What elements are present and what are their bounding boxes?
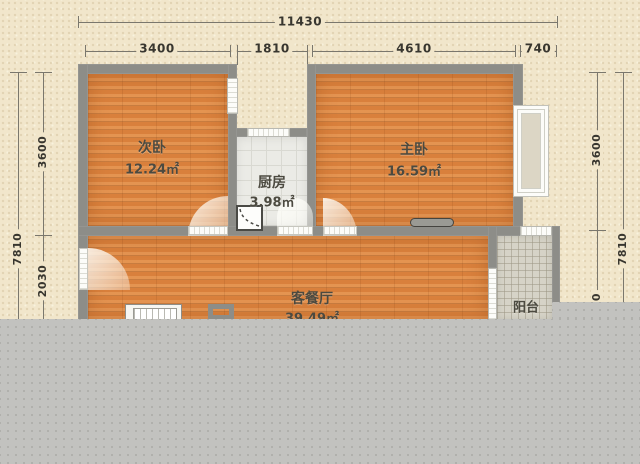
dim-tick: [615, 72, 632, 73]
dim-right-inner-label: 3600: [591, 131, 603, 170]
floorplan-canvas: 11430 3400 1810 4610 740 7810 3600 2030 …: [0, 0, 640, 464]
bedroom2-area: 12.24㎡: [125, 159, 179, 178]
dim-tick: [557, 16, 558, 28]
kitchen-name: 厨房: [258, 172, 286, 192]
dim-top-seg-label: 4610: [393, 43, 434, 56]
bay-window-panel: [521, 113, 541, 189]
dim-tick: [515, 45, 516, 57]
master-name: 主卧: [400, 139, 428, 159]
grey-overlay-bottom: [0, 319, 640, 464]
kitchen-top-window: [247, 128, 290, 137]
master-radiator: [410, 218, 454, 227]
bedroom2-door-leaf: [188, 226, 228, 235]
living-name: 客餐厅: [291, 288, 333, 308]
wall-balcony-left: [488, 226, 497, 268]
dim-tick: [85, 45, 86, 57]
dim-tick: [589, 230, 606, 231]
dim-tick: [230, 45, 231, 57]
living-table: [208, 304, 234, 320]
wall-top-right: [307, 64, 523, 74]
kitchen-door-leaf: [277, 226, 313, 235]
balcony-top-window: [520, 226, 552, 236]
dim-top-seg-label: 740: [522, 43, 555, 56]
dim-left-inner-label: 2030: [37, 262, 49, 301]
dim-left-outer-label: 7810: [12, 230, 24, 269]
bedroom2-side-window: [227, 78, 238, 114]
dim-tick: [10, 72, 27, 73]
master-door-leaf: [323, 226, 357, 235]
wall-bottom-bedrooms: [78, 226, 552, 236]
balcony-sliding-door: [488, 268, 497, 320]
master-bay-window: [513, 105, 549, 197]
living-cabinet: [125, 304, 182, 320]
master-area: 16.59㎡: [387, 161, 441, 180]
balcony-name: 阳台: [513, 297, 539, 316]
dim-top-seg-label: 3400: [136, 43, 177, 56]
dim-left-outer-line: [18, 72, 19, 319]
dim-tick: [35, 72, 52, 73]
dim-top-total-label: 11430: [275, 16, 325, 29]
dim-tick: [589, 72, 606, 73]
dim-left-inner-label: 3600: [37, 133, 49, 172]
dim-tick: [35, 235, 52, 236]
dim-tick: [78, 16, 79, 28]
entry-door-leaf: [79, 248, 88, 290]
dim-tick: [307, 45, 308, 65]
dim-tick: [556, 45, 557, 57]
dim-right-inner-line: [597, 72, 598, 302]
kitchen-area: 3.98㎡: [249, 192, 294, 211]
dim-tick: [312, 45, 313, 57]
wall-top-left: [78, 64, 237, 74]
dim-right-outer-label: 7810: [617, 230, 629, 269]
bedroom2-name: 次卧: [138, 137, 166, 157]
dim-tick: [237, 45, 238, 65]
dim-top-seg-label: 1810: [251, 43, 292, 56]
